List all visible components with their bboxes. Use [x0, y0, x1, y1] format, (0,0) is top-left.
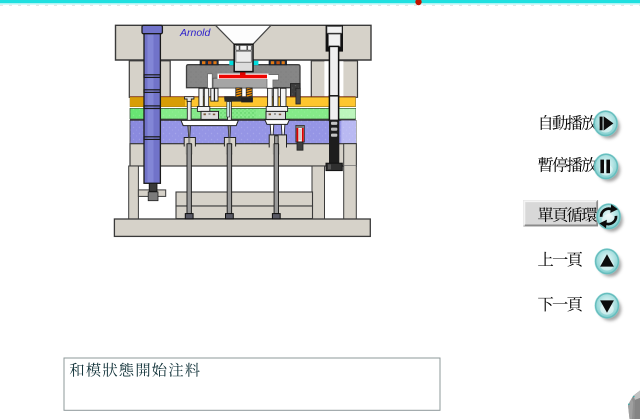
svg-text:Arnold: Arnold	[179, 27, 212, 39]
